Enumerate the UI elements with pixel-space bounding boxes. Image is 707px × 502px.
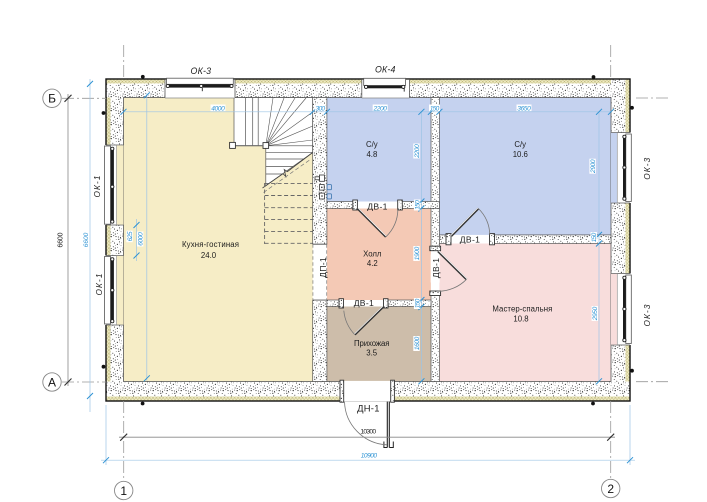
svg-text:4.8: 4.8 [366, 150, 377, 159]
svg-text:6600: 6600 [83, 232, 90, 247]
svg-text:Холл: Холл [363, 250, 382, 259]
svg-text:10.6: 10.6 [513, 150, 528, 159]
svg-text:Б: Б [48, 92, 56, 106]
svg-text:ОК-4: ОК-4 [375, 65, 396, 75]
svg-text:1: 1 [120, 484, 127, 498]
svg-text:3.5: 3.5 [366, 349, 378, 358]
svg-text:300: 300 [316, 105, 326, 112]
svg-text:Прихожая: Прихожая [354, 339, 390, 348]
svg-text:4000: 4000 [211, 105, 225, 112]
svg-text:ОК-1: ОК-1 [95, 274, 104, 296]
svg-text:ДВ-1: ДВ-1 [431, 258, 441, 278]
svg-text:Мастер-спальня: Мастер-спальня [492, 304, 552, 313]
svg-text:6600: 6600 [57, 232, 64, 247]
svg-text:ДВ-1: ДВ-1 [367, 202, 387, 212]
svg-text:10.8: 10.8 [513, 314, 528, 323]
svg-text:2950: 2950 [592, 306, 599, 321]
svg-text:150: 150 [414, 298, 421, 308]
svg-text:150: 150 [414, 200, 421, 210]
svg-text:ДП-1: ДП-1 [318, 257, 328, 278]
svg-text:ДВ-1: ДВ-1 [354, 298, 374, 308]
svg-text:С/у: С/у [366, 140, 378, 149]
svg-text:ДН-1: ДН-1 [357, 403, 380, 414]
svg-text:С/у: С/у [514, 140, 526, 149]
svg-text:2200: 2200 [414, 144, 421, 159]
svg-text:2: 2 [607, 482, 614, 496]
svg-text:ДВ-1: ДВ-1 [460, 234, 480, 244]
svg-text:А: А [48, 375, 56, 389]
svg-text:ОК-3: ОК-3 [191, 66, 212, 76]
svg-text:150: 150 [430, 105, 440, 112]
svg-text:2200: 2200 [372, 105, 387, 112]
svg-text:1600: 1600 [414, 336, 421, 350]
svg-text:625: 625 [127, 231, 134, 241]
svg-text:150: 150 [591, 232, 598, 242]
svg-text:10300: 10300 [360, 428, 376, 435]
svg-text:ОК-3: ОК-3 [643, 304, 652, 326]
svg-text:10900: 10900 [361, 453, 378, 460]
svg-text:3650: 3650 [517, 105, 531, 112]
svg-text:1900: 1900 [414, 246, 421, 260]
svg-text:6000: 6000 [138, 232, 145, 246]
svg-text:2900: 2900 [590, 159, 597, 174]
svg-text:Кухня-гостиная: Кухня-гостиная [182, 240, 239, 249]
svg-text:ОК-1: ОК-1 [93, 176, 102, 198]
svg-text:4.2: 4.2 [367, 259, 378, 268]
svg-text:24.0: 24.0 [201, 251, 217, 260]
svg-text:ОК-3: ОК-3 [643, 157, 652, 179]
